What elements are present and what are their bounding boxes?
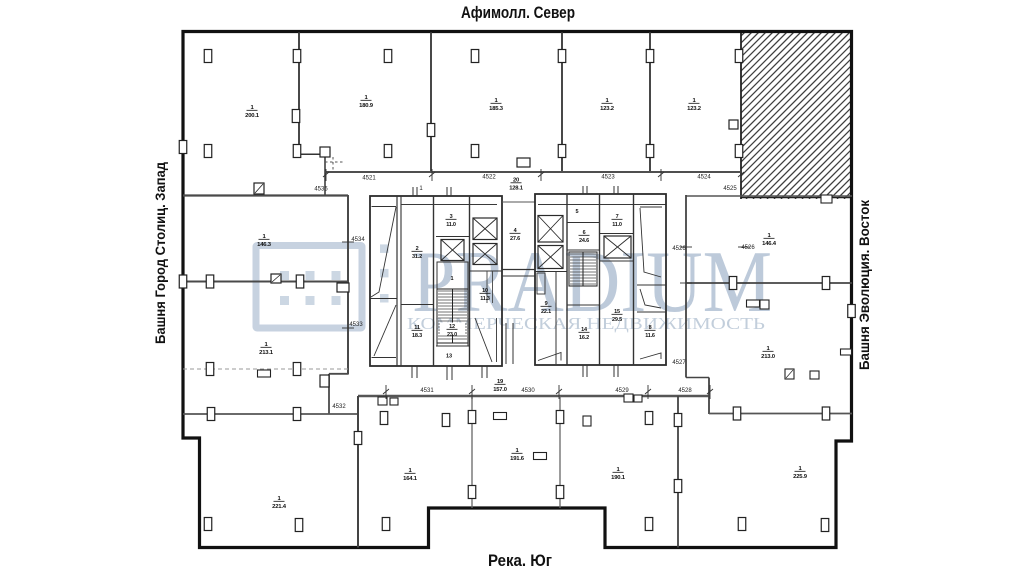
svg-text:146.4: 146.4 (762, 241, 777, 247)
svg-text:4535: 4535 (314, 187, 328, 193)
svg-text:4532: 4532 (332, 404, 346, 410)
svg-text:221.4: 221.4 (272, 504, 287, 510)
svg-text:213.1: 213.1 (259, 350, 274, 356)
svg-text:4521: 4521 (362, 176, 376, 182)
svg-text:213.0: 213.0 (761, 354, 776, 360)
svg-text:4533: 4533 (349, 322, 363, 328)
svg-text:27.6: 27.6 (510, 236, 520, 242)
svg-text:1: 1 (450, 276, 453, 282)
svg-text:200.1: 200.1 (245, 113, 260, 119)
svg-text:4528: 4528 (678, 388, 692, 394)
svg-text:11.0: 11.0 (446, 222, 456, 228)
svg-text:185.3: 185.3 (489, 106, 504, 112)
svg-text:4527: 4527 (672, 360, 686, 366)
svg-text:180.9: 180.9 (359, 103, 374, 109)
svg-text:31.2: 31.2 (412, 254, 422, 260)
svg-text:191.6: 191.6 (510, 456, 525, 462)
svg-text:123.2: 123.2 (687, 106, 702, 112)
svg-text:4522: 4522 (482, 175, 496, 181)
svg-text:4523: 4523 (601, 175, 615, 181)
svg-text:190.1: 190.1 (611, 475, 626, 481)
svg-text:157.0: 157.0 (493, 387, 507, 393)
svg-text:13: 13 (446, 354, 452, 360)
svg-text:Афимолл. Север: Афимолл. Север (461, 3, 575, 22)
svg-text:5: 5 (575, 209, 578, 215)
svg-text:11.3: 11.3 (480, 296, 490, 302)
svg-text:11.0: 11.0 (612, 222, 622, 228)
svg-text:23.0: 23.0 (447, 332, 457, 338)
svg-text:4526: 4526 (741, 245, 755, 251)
svg-text:146.3: 146.3 (257, 242, 272, 248)
svg-text:164.1: 164.1 (403, 476, 418, 482)
svg-text:4524: 4524 (697, 175, 711, 181)
svg-text:22.1: 22.1 (541, 309, 551, 315)
svg-text:29.5: 29.5 (612, 317, 622, 323)
svg-text:24.6: 24.6 (579, 238, 589, 244)
svg-text:128.1: 128.1 (509, 186, 523, 192)
svg-text:4525: 4525 (723, 186, 737, 192)
svg-text:225.9: 225.9 (793, 474, 808, 480)
svg-text:Башня Эволюция. Восток: Башня Эволюция. Восток (856, 199, 872, 370)
svg-text:Река. Юг: Река. Юг (488, 551, 552, 570)
svg-text:Башня Город Столиц. Запад: Башня Город Столиц. Запад (152, 162, 168, 344)
svg-text:16.2: 16.2 (579, 335, 589, 341)
svg-text:4530: 4530 (521, 388, 535, 394)
svg-text:123.2: 123.2 (600, 106, 615, 112)
svg-text:4531: 4531 (420, 388, 434, 394)
svg-text:11.6: 11.6 (645, 333, 655, 339)
svg-text:4529: 4529 (615, 388, 629, 394)
svg-text:18.3: 18.3 (412, 333, 422, 339)
